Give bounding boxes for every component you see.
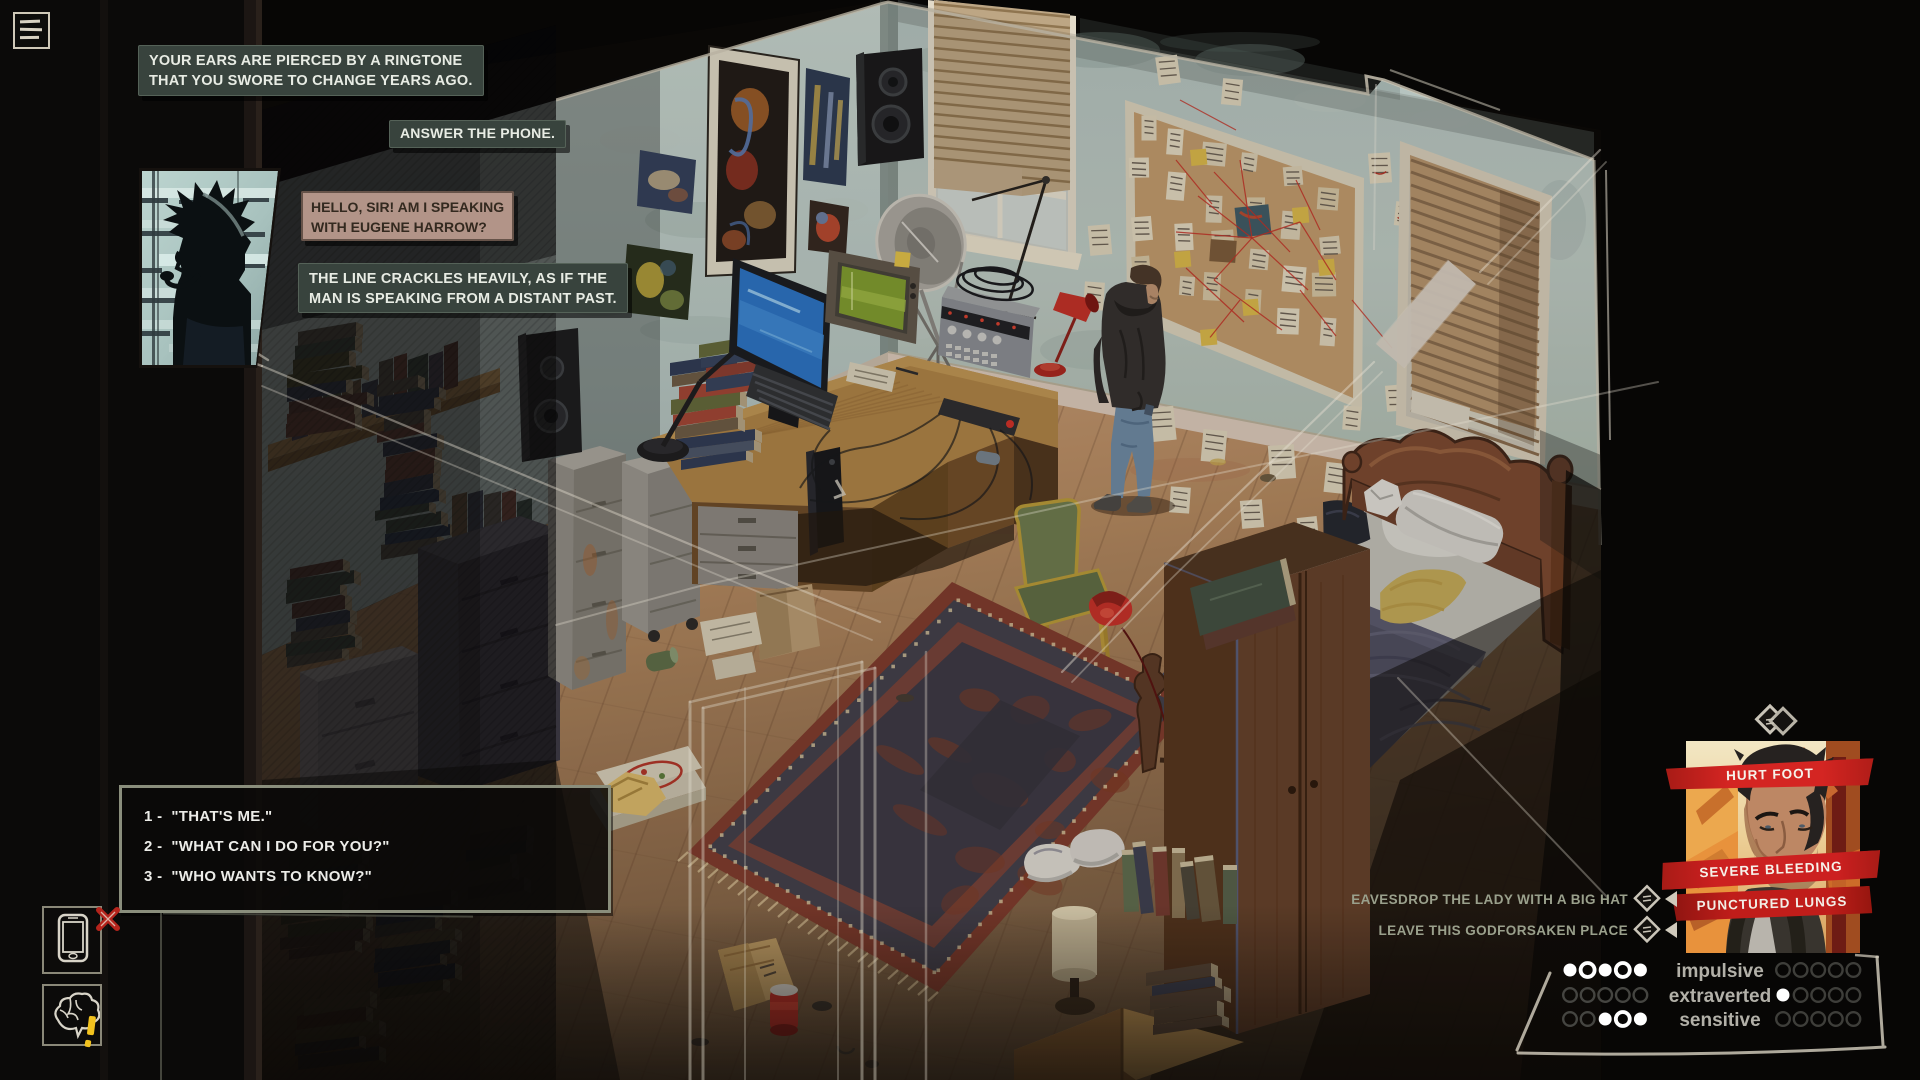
svg-text:extraverted: extraverted [1669, 986, 1771, 1007]
svg-text:sensitive: sensitive [1679, 1010, 1760, 1031]
svg-text:impulsive: impulsive [1676, 961, 1764, 982]
